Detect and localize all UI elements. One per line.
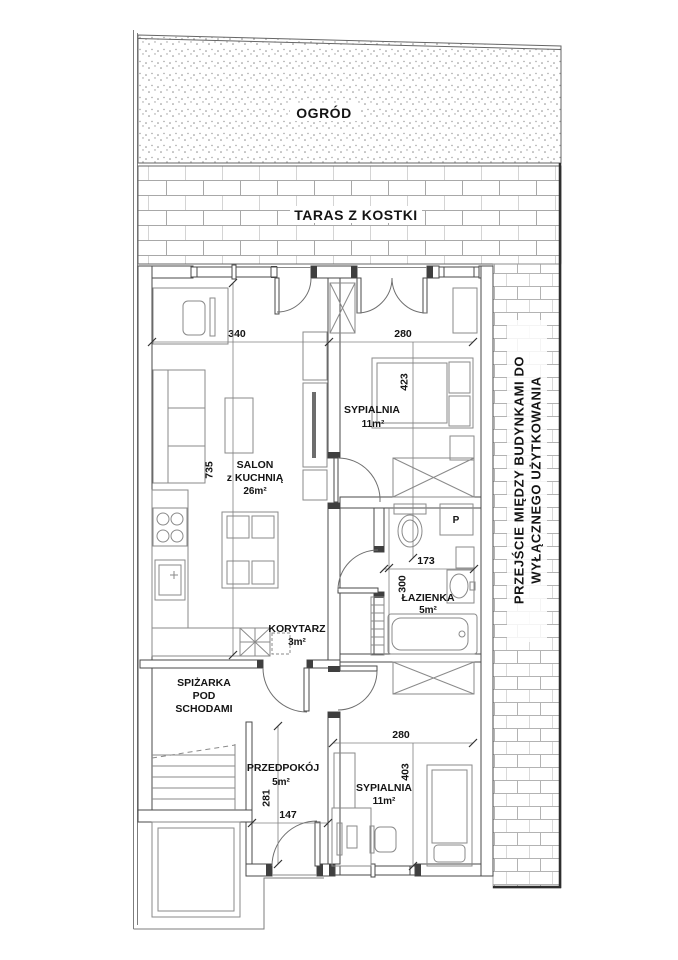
monitor: [210, 298, 215, 336]
dim-bedroom-bottom-height: 403: [400, 763, 412, 781]
dim-hall-width: 147: [279, 809, 297, 821]
washer-label: P: [453, 515, 460, 526]
dresser: [453, 288, 477, 333]
sofa: [153, 370, 205, 483]
bedroom-top-double-door: [357, 278, 427, 313]
garden-region: [138, 35, 561, 163]
hall-area: 5m²: [272, 777, 290, 788]
tv-screen: [312, 392, 316, 458]
corridor-hall-door: [263, 668, 309, 712]
washing-machine: P: [440, 504, 473, 535]
floor-plan-page: OGRÓD TARAS Z KOSTKI PRZEJŚCIE MIĘDZY BU…: [0, 0, 678, 960]
dining-chair: [252, 516, 274, 538]
stairs: [152, 744, 235, 810]
dim-bathroom-height: 300: [397, 575, 409, 593]
passage-label-line1: PRZEJŚCIE MIĘDZY BUDYNKAMI DO: [512, 356, 527, 604]
bathroom-door: [338, 550, 378, 593]
dining-chair: [227, 561, 249, 584]
burner: [157, 513, 169, 525]
kitchen-sink-basin: [159, 565, 181, 595]
bedroom-bottom-label: SYPIALNIA: [356, 782, 412, 794]
floor-plan-drawing: OGRÓD TARAS Z KOSTKI PRZEJŚCIE MIĘDZY BU…: [0, 0, 678, 960]
terrace-area: TARAS Z KOSTKI: [138, 166, 561, 264]
desk-chair: [183, 301, 205, 335]
pantry-label-line3: SCHODAMI: [175, 703, 232, 715]
coffee-table: [225, 398, 253, 453]
hall-bedroom-bottom-door: [338, 666, 377, 710]
toilet: [394, 504, 426, 547]
hall-label: PRZEDPOKÓJ: [247, 761, 320, 774]
burner: [171, 513, 183, 525]
stove: [153, 508, 187, 546]
wardrobe: [393, 458, 474, 497]
desk: [153, 288, 228, 344]
bedroom-top-window: [439, 267, 479, 277]
desk-chair: [375, 827, 396, 852]
pillow: [449, 396, 470, 426]
garden-label: OGRÓD: [296, 104, 351, 121]
corridor-area: 3m²: [288, 637, 306, 648]
fridge: [240, 628, 270, 656]
wardrobe: [393, 662, 474, 694]
bathtub: [388, 614, 477, 654]
pillow: [434, 845, 465, 862]
dining-chair: [227, 516, 249, 538]
bedroom-top-label: SYPIALNIA: [344, 404, 400, 416]
salon-label: SALON: [237, 459, 274, 471]
mattress: [432, 770, 467, 843]
pc-tower: [347, 826, 357, 848]
tv-cabinet-bottom: [303, 470, 327, 500]
faucet-icon: [170, 571, 178, 579]
bedroom-top-side-door: [334, 458, 380, 502]
bedroom-bottom-area: 11m²: [373, 796, 396, 807]
dim-bedroom-top-width: 280: [394, 328, 412, 340]
entry-porch: [152, 822, 240, 917]
salon-area: 26m²: [243, 486, 267, 497]
salon-label-line2: z KUCHNIĄ: [227, 472, 284, 484]
pantry-label-line2: POD: [193, 690, 216, 702]
entry-door: [272, 821, 320, 866]
dim-salon-height: 735: [204, 461, 216, 479]
dim-salon-width: 340: [228, 328, 246, 340]
corridor-label: KORYTARZ: [268, 623, 326, 635]
garden-area: OGRÓD: [138, 35, 561, 166]
terrace-label: TARAS Z KOSTKI: [294, 207, 417, 223]
kitchen-counter-bottom: [152, 628, 240, 656]
bathroom-label: ŁAZIENKA: [401, 592, 454, 604]
tv-cabinet-top: [303, 332, 327, 380]
bathroom-area: 5m²: [419, 605, 437, 616]
nightstand: [450, 436, 474, 460]
bedroom-top-area: 11m²: [362, 419, 385, 430]
dim-hall-height: 281: [261, 789, 273, 807]
passage-area: PRZEJŚCIE MIĘDZY BUDYNKAMI DO WYŁĄCZNEGO…: [493, 163, 561, 888]
burner: [171, 530, 183, 542]
dim-bedroom-top-height: 423: [399, 373, 411, 391]
dining-table: [222, 512, 278, 588]
pantry-label: SPIŻARKA: [177, 676, 231, 689]
dim-bedroom-bottom-width: 280: [392, 729, 410, 741]
kitchen-counter-left: [152, 490, 188, 628]
burner: [157, 530, 169, 542]
dim-bathroom-width: 173: [417, 555, 435, 567]
dimension-lines: 340 280 735 423 173 300 280 403 281: [148, 279, 478, 870]
balcony-door: [275, 278, 311, 314]
bathroom-cabinet: [456, 547, 474, 568]
passage-label-line2: WYŁĄCZNEGO UŻYTKOWANIA: [529, 376, 544, 583]
dining-chair: [252, 561, 274, 584]
salon-window: [191, 265, 277, 279]
bathroom-fixtures: P: [371, 504, 477, 655]
pillow: [449, 362, 470, 393]
